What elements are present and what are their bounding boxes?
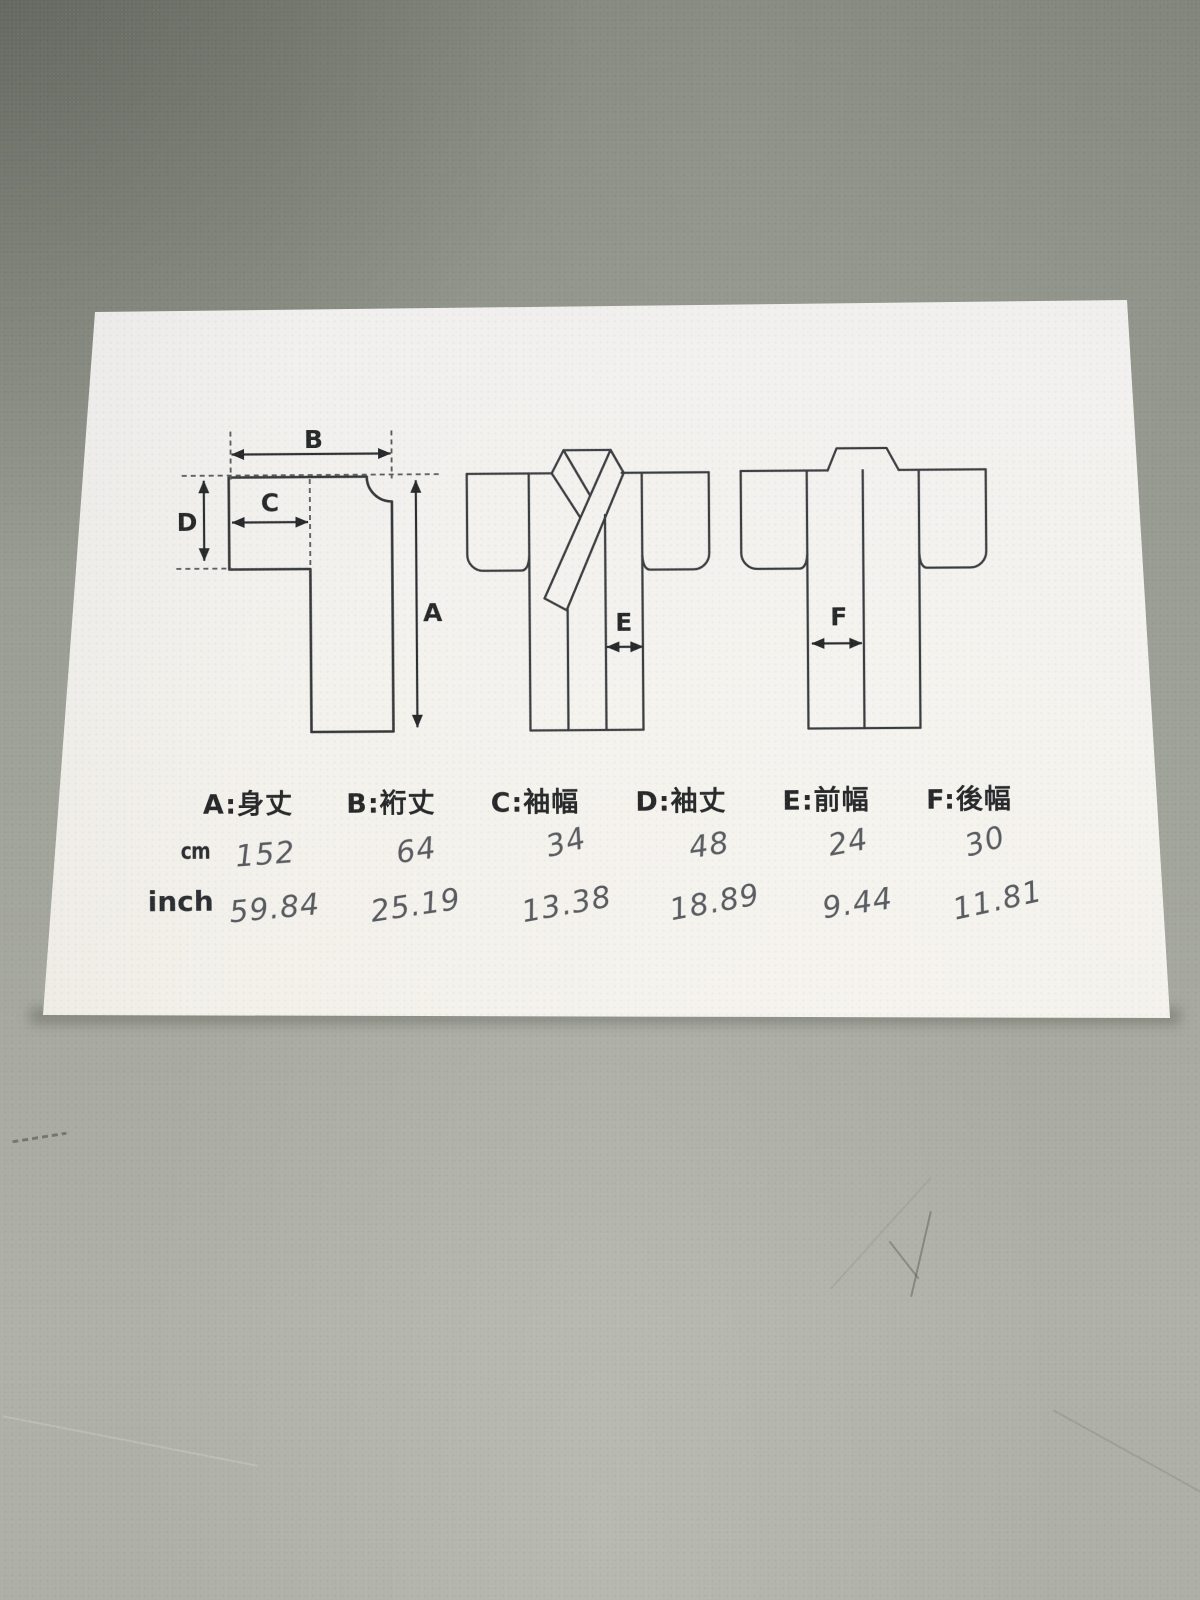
- cm-value-b: 64: [394, 831, 439, 871]
- kimono-front-diagram: E: [467, 449, 711, 731]
- legend-item-e: E:前幅: [782, 778, 870, 818]
- front-right-sleeve: [642, 472, 710, 569]
- label-f: F: [830, 602, 847, 631]
- folded-kimono-diagram: B C D A: [175, 424, 443, 733]
- front-hem: [530, 730, 643, 731]
- kimono-size-diagram: B C D A: [0, 0, 1200, 1600]
- front-shoulder-right: [622, 472, 709, 473]
- front-collar-peak: [552, 450, 624, 474]
- front-shoulder-left: [467, 473, 552, 474]
- label-c: C: [261, 488, 280, 517]
- arrow-a: [416, 480, 418, 727]
- label-d: D: [177, 508, 198, 537]
- front-body-left-edge: [529, 473, 531, 730]
- legend-item-f: F:後幅: [926, 777, 1012, 817]
- cm-value-e: 24: [825, 822, 871, 864]
- legend-item-d: D:袖丈: [635, 779, 726, 819]
- back-body-left-edge: [807, 471, 809, 729]
- sheet-content: B C D A: [0, 0, 1200, 1600]
- arrow-d: [204, 481, 205, 561]
- legend-item-b: B:裄丈: [346, 781, 436, 821]
- guide-line-top: [182, 474, 442, 476]
- front-collar-under-left: [552, 473, 580, 517]
- front-panel-seam: [605, 515, 607, 730]
- back-shoulder-left: [741, 470, 828, 471]
- back-body-right-edge: [919, 470, 921, 728]
- front-body-right-edge: [642, 473, 644, 730]
- arrow-c: [232, 522, 308, 523]
- guide-line-c: [310, 479, 311, 569]
- photo: B C D A: [0, 0, 1200, 1600]
- back-right-sleeve: [919, 469, 987, 567]
- front-collar-under-inner: [564, 450, 590, 495]
- label-a: A: [423, 598, 443, 627]
- legend-item-a: A:身丈: [203, 782, 293, 822]
- front-left-sleeve: [467, 473, 530, 570]
- front-collar-band-right-edge: [566, 473, 625, 610]
- inch-row-label: inch: [148, 885, 214, 918]
- label-b: B: [304, 425, 323, 454]
- cm-row-label: cm: [181, 839, 210, 865]
- kimono-back-diagram: F: [741, 447, 988, 729]
- cm-value-a: 152: [234, 835, 297, 875]
- back-shoulder-right: [899, 469, 986, 470]
- label-e: E: [615, 608, 632, 637]
- folded-kimono-outline: [229, 476, 394, 732]
- back-left-sleeve: [741, 471, 808, 569]
- back-center-seam: [863, 470, 865, 728]
- front-collar-band-cap: [545, 598, 567, 610]
- legend-item-c: C:袖幅: [491, 780, 580, 820]
- back-collar: [828, 448, 899, 470]
- front-okumi-seam: [568, 609, 569, 730]
- back-hem: [808, 728, 920, 729]
- cm-value-d: 48: [687, 825, 732, 865]
